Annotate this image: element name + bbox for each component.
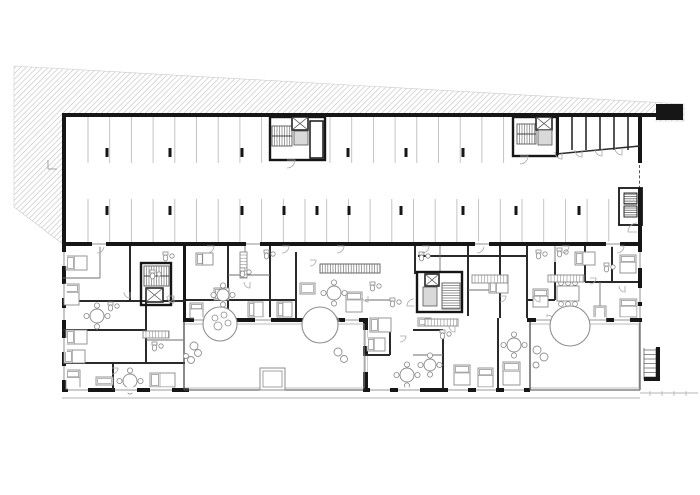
toilet-tank [557,248,562,251]
tree-canopy-detail [214,322,222,330]
structural-column [283,206,286,215]
door-arc [337,246,344,253]
toilet-tank [163,252,168,255]
bush [533,346,541,354]
chair [501,342,506,347]
structural-column [106,148,109,157]
structural-column [169,206,172,215]
chair [342,290,347,295]
bush [195,350,202,357]
toilet-tank [150,270,155,273]
toilet-tank [264,250,269,253]
bed [454,365,470,385]
exterior [62,104,698,398]
chair [117,378,122,383]
bed [248,302,263,317]
garage-storerooms [556,117,642,225]
wall-thick [62,113,662,117]
dining-table [400,368,414,382]
chair [511,353,516,358]
chair [230,292,235,297]
sink [397,300,401,304]
bed [64,350,85,363]
toilet-bowl [108,305,112,311]
vent-shaft [624,193,637,204]
toilet-bowl [536,253,540,259]
toilet-bowl [152,345,156,351]
bed [346,292,362,312]
bed [533,289,548,307]
tree-canopy-detail [212,315,218,321]
garage-entry-block [656,104,683,120]
kitchen-counter [472,275,508,283]
toilet-bowl [440,333,444,339]
chair [331,301,336,306]
bush [341,356,348,363]
chair [437,362,442,367]
bed [66,330,87,344]
floor-plan-svg [0,0,700,495]
toilet-tank [390,298,395,301]
toilet-tank [240,268,245,271]
structural-column [348,206,351,215]
sink [157,272,161,276]
bed [575,252,595,265]
vent-shaft [624,206,637,217]
toilet-bowl [150,273,154,279]
bush [540,353,548,361]
door-arc [400,336,406,342]
dining-table [327,286,341,300]
chair [331,280,336,285]
toilet-bowl [240,271,244,277]
door-arc [244,282,250,288]
toilet-tank [419,252,424,255]
door-arc [97,246,104,253]
chair [522,342,527,347]
bush [334,348,342,356]
door-arc [449,326,455,332]
kitchen-counter [425,319,458,326]
bed [277,302,292,317]
sink [543,252,547,256]
structural-column [400,206,403,215]
bed [370,318,391,332]
bed [367,338,385,351]
structural-column [462,148,465,157]
bed [66,370,80,389]
dining-table [507,338,521,352]
chair [138,378,143,383]
chair [105,313,110,318]
chair [415,372,420,377]
exterior-stair-wall [656,347,660,381]
structural-column [241,148,244,157]
dining-table [557,286,579,301]
bed [620,299,637,317]
structural-column [405,148,408,157]
chair [573,302,578,307]
structural-column [462,206,465,215]
chair [220,283,225,288]
core-door-arc [407,299,414,306]
stair-flight [442,283,460,309]
chair [404,362,409,367]
toilet-bowl [370,285,374,291]
door-arc [282,246,289,253]
chair [220,302,225,307]
elevator-cab [423,287,437,306]
sofa [96,377,113,385]
toilet-tank [604,263,609,266]
door-arc [477,246,484,253]
floor-plan-page [0,0,700,495]
sink [426,254,430,258]
toilet-tank [152,342,157,345]
structural-column [347,148,350,157]
wall-thick [638,117,642,163]
structural-column [515,206,518,215]
tree [550,306,590,346]
door-arc [310,260,316,266]
sink [247,270,251,274]
wall-thick [62,113,66,246]
tree-canopy-detail [225,320,231,326]
structural-column [578,206,581,215]
bush [533,362,539,368]
chair [418,362,423,367]
structural-column [169,148,172,157]
walls [62,113,662,392]
bush [188,357,195,364]
bed [150,373,175,387]
door-arc [619,286,625,292]
dining-table [90,309,104,323]
toilet-bowl [419,255,423,261]
sink [115,304,119,308]
dining-table [424,359,436,371]
toilet-bowl [163,255,167,261]
wall-thick [62,242,642,246]
elevator-cab [294,131,308,145]
dining-table [217,289,229,301]
chair [427,372,432,377]
door-arc [207,246,214,253]
toilet-bowl [264,253,268,259]
chair [559,302,564,307]
toilet-tank [370,282,375,285]
toilet-tank [108,302,113,305]
sink [377,284,381,288]
toilet-tank [440,330,445,333]
dining-table [123,374,137,388]
core-side-room [310,121,323,158]
chair [127,368,132,373]
sink [611,265,615,269]
sink [271,252,275,256]
kitchen-counter [548,275,584,282]
chair [427,353,432,358]
toilet-bowl [604,266,608,272]
sink [159,344,163,348]
chair [394,372,399,377]
door-arc [617,246,624,253]
elevator-cab [538,130,552,145]
chair [211,292,216,297]
chair [511,332,516,337]
chair [321,290,326,295]
toilet-bowl [557,251,561,257]
structural-column [106,206,109,215]
corridor-stair-strip [320,264,380,273]
exterior-stair-wall [644,377,660,381]
structural-column [316,206,319,215]
chair [94,303,99,308]
sink [170,254,174,258]
bed [620,255,636,273]
tree-canopy-detail [221,312,227,318]
door-arc [362,296,368,302]
structural-column [241,206,244,215]
wall-thick [183,242,186,322]
bed [503,362,520,385]
chair [94,324,99,329]
chair [84,313,89,318]
toilet-tank [536,250,541,253]
bush [184,354,189,359]
bush [190,342,198,350]
bed [478,368,493,387]
tree [302,307,338,343]
sink [447,332,451,336]
toilet-bowl [390,301,394,307]
bed [66,256,87,270]
bed [190,303,203,318]
